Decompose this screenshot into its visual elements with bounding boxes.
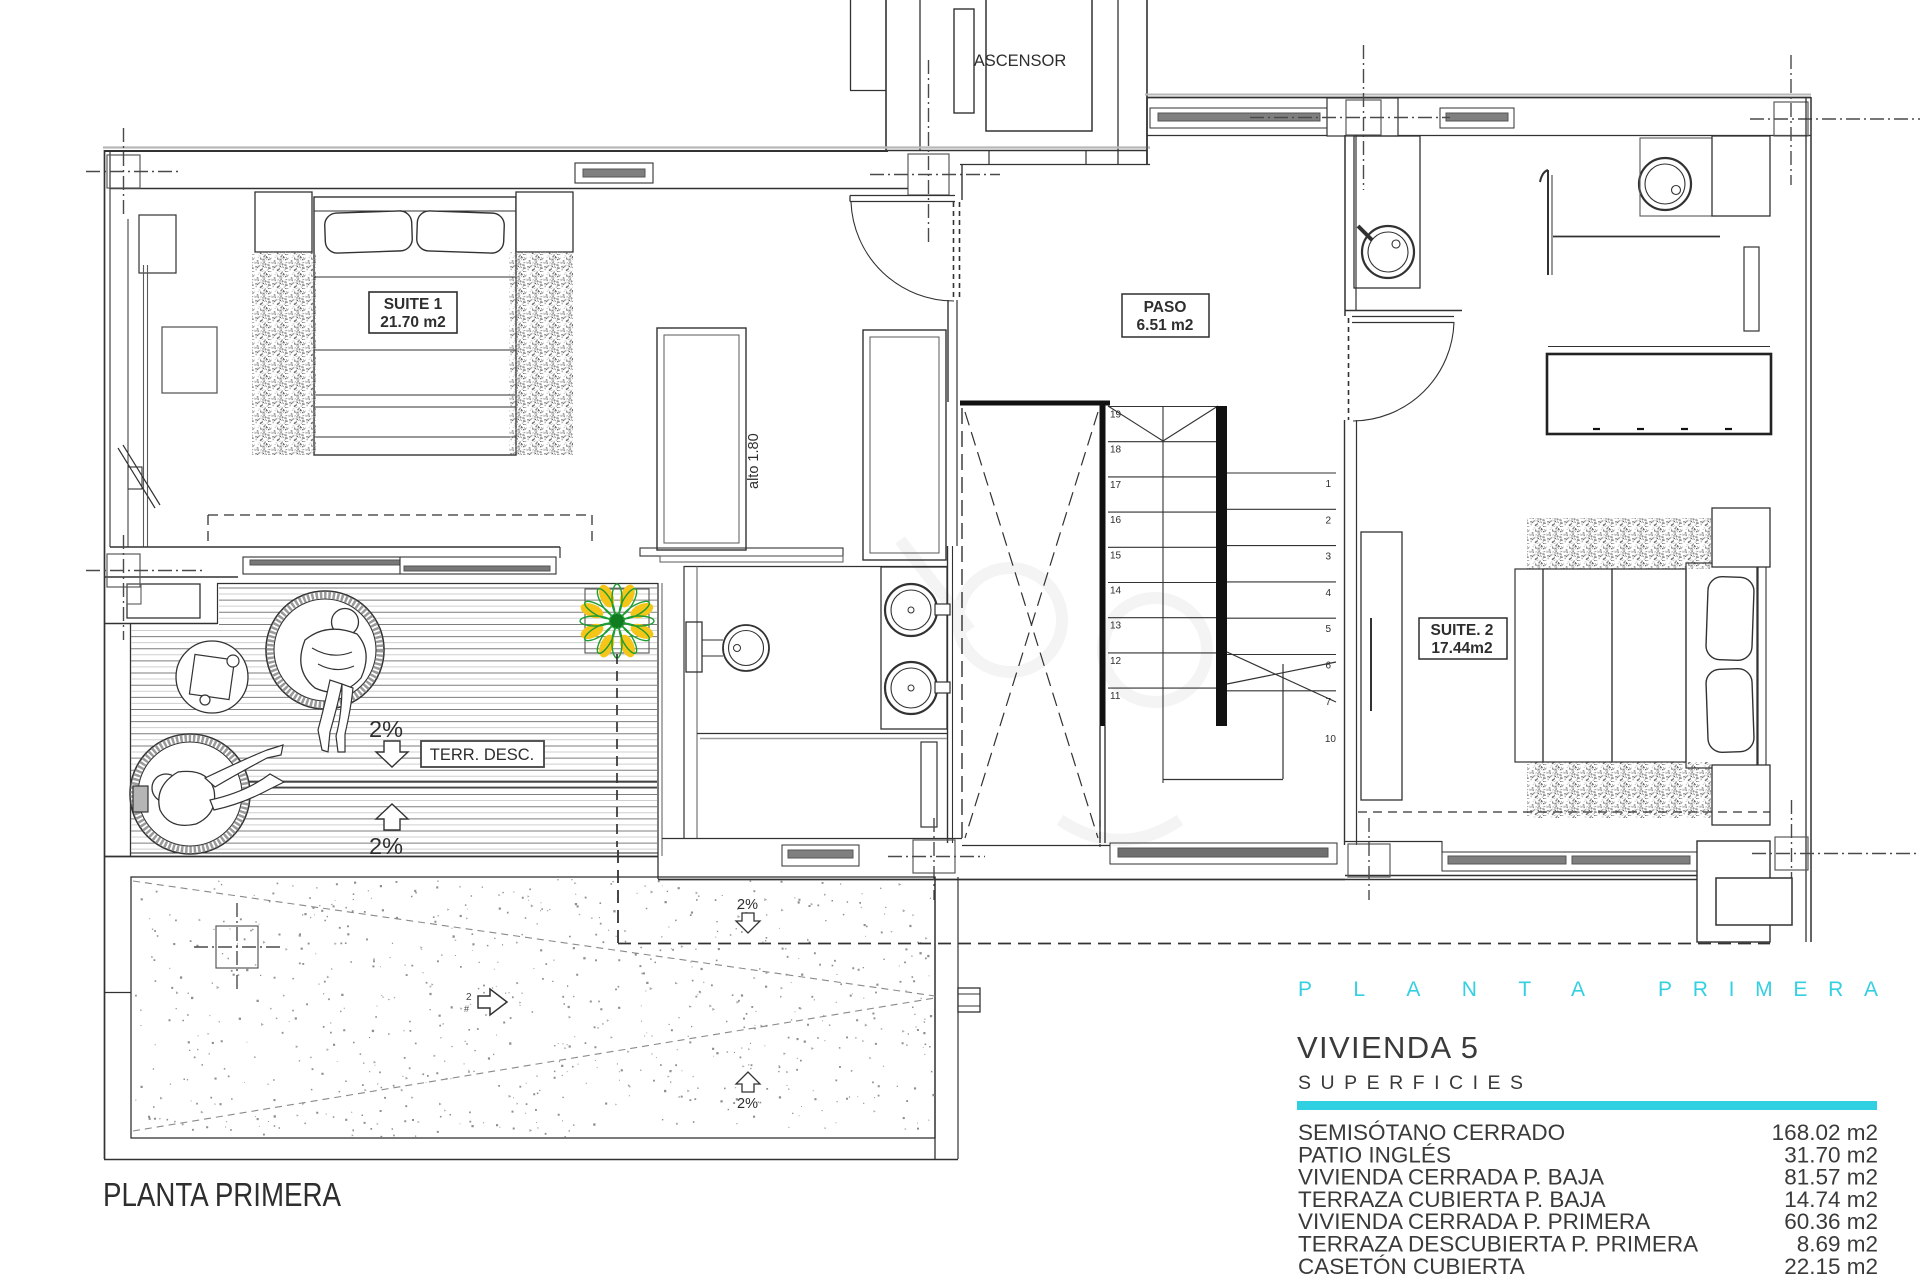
svg-text:19: 19 — [1110, 410, 1122, 421]
svg-text:81.57 m2: 81.57 m2 — [1784, 1165, 1878, 1190]
svg-text:2: 2 — [466, 992, 472, 1003]
svg-text:5: 5 — [1325, 624, 1331, 635]
svg-text:2%: 2% — [369, 833, 403, 859]
svg-text:6: 6 — [1325, 661, 1331, 672]
svg-text:TERRAZA DESCUBIERTA P. PRIMERA: TERRAZA DESCUBIERTA P. PRIMERA — [1298, 1232, 1698, 1257]
svg-text:10: 10 — [1325, 734, 1337, 745]
svg-text:PASO: PASO — [1144, 299, 1187, 316]
svg-text:17: 17 — [1110, 480, 1122, 491]
svg-text:17.44m2: 17.44m2 — [1431, 640, 1492, 657]
svg-text:18.64 m2: 18.64 m2 — [1784, 1276, 1878, 1280]
svg-text:22.15 m2: 22.15 m2 — [1784, 1254, 1878, 1279]
svg-text:TERRAZA CUBIERTA P. BAJA: TERRAZA CUBIERTA P. BAJA — [1298, 1187, 1606, 1212]
svg-text:SUITE 1: SUITE 1 — [384, 296, 443, 313]
svg-text:11: 11 — [1110, 691, 1121, 702]
svg-text:14.74 m2: 14.74 m2 — [1784, 1187, 1878, 1212]
svg-text:3: 3 — [1325, 552, 1331, 563]
svg-text:13: 13 — [1110, 621, 1122, 632]
svg-text:TERR. DESC.: TERR. DESC. — [430, 746, 535, 764]
svg-text:18: 18 — [1110, 445, 1122, 456]
svg-text:8.69 m2: 8.69 m2 — [1797, 1232, 1878, 1257]
svg-text:PATIO INGLÉS: PATIO INGLÉS — [1298, 1142, 1451, 1167]
svg-text:16: 16 — [1110, 515, 1122, 526]
svg-text:2%: 2% — [737, 897, 758, 913]
svg-text:1: 1 — [1325, 479, 1331, 490]
svg-text:6.51 m2: 6.51 m2 — [1137, 317, 1194, 334]
svg-text:168.02 m2: 168.02 m2 — [1772, 1120, 1878, 1145]
svg-text:alto 1.80: alto 1.80 — [746, 433, 762, 489]
svg-text:7: 7 — [1325, 697, 1331, 708]
svg-text:#: # — [464, 1004, 469, 1014]
svg-text:SUPERFICIES: SUPERFICIES — [1298, 1072, 1533, 1094]
svg-text:CASETÓN CUBIERTA: CASETÓN CUBIERTA — [1298, 1254, 1525, 1279]
svg-text:4: 4 — [1325, 588, 1331, 599]
svg-text:VIVIENDA CERRADA P. PRIMERA: VIVIENDA CERRADA P. PRIMERA — [1298, 1209, 1650, 1234]
svg-text:2: 2 — [1325, 515, 1331, 526]
svg-text:2%: 2% — [737, 1096, 758, 1112]
svg-text:VIVIENDA 5: VIVIENDA 5 — [1297, 1030, 1478, 1065]
svg-text:PLANTA PRIMERA: PLANTA PRIMERA — [103, 1176, 341, 1213]
svg-text:21.70 m2: 21.70 m2 — [380, 314, 446, 331]
svg-text:60.36 m2: 60.36 m2 — [1784, 1209, 1878, 1234]
svg-text:12: 12 — [1110, 656, 1122, 667]
svg-text:31.70 m2: 31.70 m2 — [1784, 1142, 1878, 1167]
svg-text:SOLARIUM: SOLARIUM — [1298, 1276, 1416, 1280]
svg-text:SEMISÓTANO CERRADO: SEMISÓTANO CERRADO — [1298, 1120, 1565, 1145]
svg-text:PRIMERA: PRIMERA — [1658, 978, 1896, 1001]
svg-text:ASCENSOR: ASCENSOR — [974, 52, 1067, 70]
svg-text:14: 14 — [1110, 586, 1122, 597]
svg-text:15: 15 — [1110, 550, 1122, 561]
svg-text:2%: 2% — [369, 716, 403, 742]
svg-text:SUITE. 2: SUITE. 2 — [1431, 622, 1494, 639]
svg-text:VIVIENDA CERRADA P. BAJA: VIVIENDA CERRADA P. BAJA — [1298, 1165, 1604, 1190]
